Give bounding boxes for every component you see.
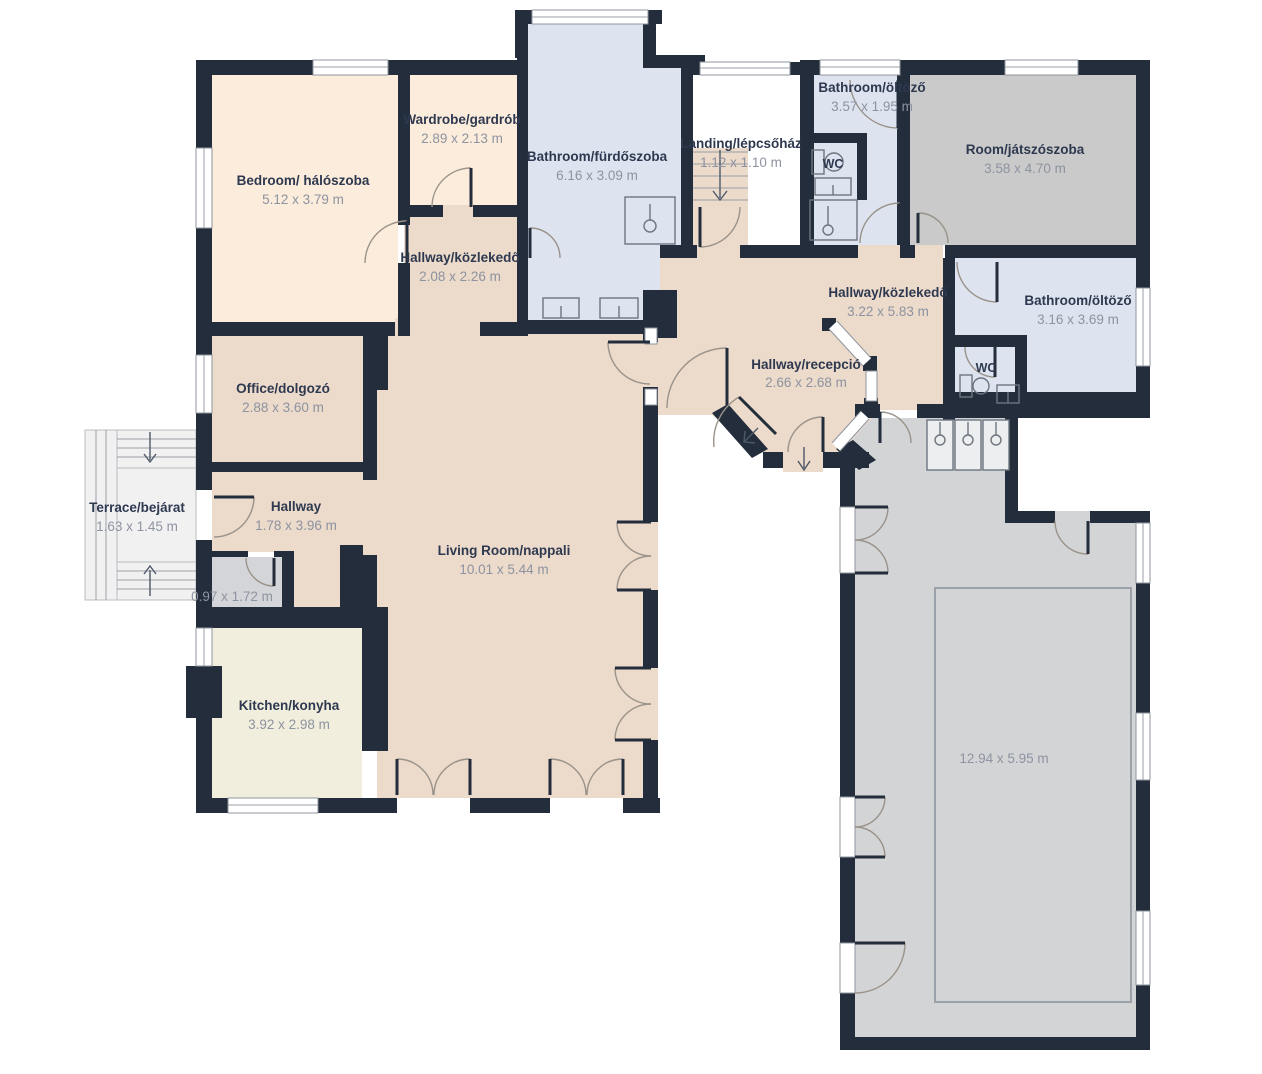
playroom-dims: 3.58 x 4.70 m	[984, 161, 1066, 176]
bathroom-top-dims: 3.57 x 1.95 m	[831, 99, 913, 114]
floorplan-svg: Bedroom/ hálószoba 5.12 x 3.79 m Wardrob…	[0, 0, 1262, 1074]
kitchen-dims: 3.92 x 2.98 m	[248, 717, 330, 732]
hallway-entry-dims: 1.78 x 3.96 m	[255, 518, 337, 533]
room-office	[212, 336, 363, 462]
threshold-pool-door-2	[840, 797, 855, 857]
terrace-stairs-top	[117, 430, 196, 468]
window-playroom-top	[1005, 60, 1078, 75]
bedroom-dims: 5.12 x 3.79 m	[262, 192, 344, 207]
kitchen-name: Kitchen/konyha	[239, 698, 340, 713]
window-office-left	[196, 355, 212, 413]
pool-basin	[935, 588, 1131, 1002]
terrace-structure	[85, 430, 196, 600]
bathroom-top-name: Bathroom/öltöző	[818, 80, 925, 95]
hallway-entry-name: Hallway	[271, 499, 322, 514]
wardrobe-dims: 2.89 x 2.13 m	[421, 131, 503, 146]
window-landing-top	[700, 62, 790, 75]
threshold-pool-door-3	[840, 943, 855, 993]
wc-top-name: WC	[823, 157, 844, 171]
window-bedroom-top	[313, 60, 388, 75]
room-playroom	[910, 75, 1136, 245]
threshold-pool-door-1	[840, 507, 855, 573]
hallway-main-name: Hallway/közlekedő	[828, 285, 947, 300]
pool-room-dims: 12.94 x 5.95 m	[959, 751, 1048, 766]
playroom-name: Room/játszószoba	[966, 142, 1085, 157]
shower-stall-1	[927, 420, 953, 470]
label-wc-top: WC	[823, 157, 844, 171]
hallway-small-dims: 2.08 x 2.26 m	[419, 269, 501, 284]
terrace-stairs-bottom	[117, 562, 196, 600]
bathroom-main-name: Bathroom/fürdőszoba	[527, 149, 668, 164]
window-bedroom-left	[196, 148, 212, 228]
landing-dims: 1.12 x 1.10 m	[700, 155, 782, 170]
bathroom-right-dims: 3.16 x 3.69 m	[1037, 312, 1119, 327]
living-room-name: Living Room/nappali	[438, 543, 571, 558]
window-pool-right-2	[1136, 713, 1150, 780]
office-name: Office/dolgozó	[236, 381, 330, 396]
terrace-platform	[117, 468, 196, 562]
window-bathroom-right	[1136, 288, 1150, 366]
window-reception-left-b	[645, 389, 657, 405]
shower-stall-2	[955, 420, 981, 470]
room-kitchen	[206, 628, 362, 798]
window-bathroom-bay	[532, 10, 648, 24]
floorplan-page: Bedroom/ hálószoba 5.12 x 3.79 m Wardrob…	[0, 0, 1262, 1074]
label-pantry: 0.97 x 1.72 m	[191, 589, 273, 604]
bathroom-right-name: Bathroom/öltöző	[1024, 293, 1131, 308]
bedroom-name: Bedroom/ hálószoba	[237, 173, 370, 188]
living-room-dims: 10.01 x 5.44 m	[459, 562, 548, 577]
window-pool-right-1	[1136, 523, 1150, 583]
terrace-dims: 1.63 x 1.45 m	[96, 519, 178, 534]
hallway-main-dims: 3.22 x 5.83 m	[847, 304, 929, 319]
reception-name: Hallway/recepció	[751, 357, 861, 372]
window-pool-right-3	[1136, 911, 1150, 985]
label-wc-right: WC	[976, 361, 997, 375]
pantry-dims: 0.97 x 1.72 m	[191, 589, 273, 604]
reception-dims: 2.66 x 2.68 m	[765, 375, 847, 390]
window-reception-right	[866, 371, 877, 401]
bathroom-main-dims: 6.16 x 3.09 m	[556, 168, 638, 183]
window-kitchen-left	[196, 628, 212, 666]
shower-stall-3	[983, 420, 1009, 470]
wardrobe-name: Wardrobe/gardrób	[403, 112, 520, 127]
window-kitchen-bottom	[228, 798, 318, 813]
terrace-name: Terrace/bejárat	[89, 500, 185, 515]
label-pool-room: 12.94 x 5.95 m	[959, 751, 1048, 766]
landing-name: Landing/lépcsőház	[680, 136, 802, 151]
office-dims: 2.88 x 3.60 m	[242, 400, 324, 415]
window-bathroom-top	[820, 60, 900, 75]
terrace-side-landing	[85, 430, 117, 600]
hallway-small-name: Hallway/közlekedő	[400, 250, 519, 265]
wc-right-name: WC	[976, 361, 997, 375]
